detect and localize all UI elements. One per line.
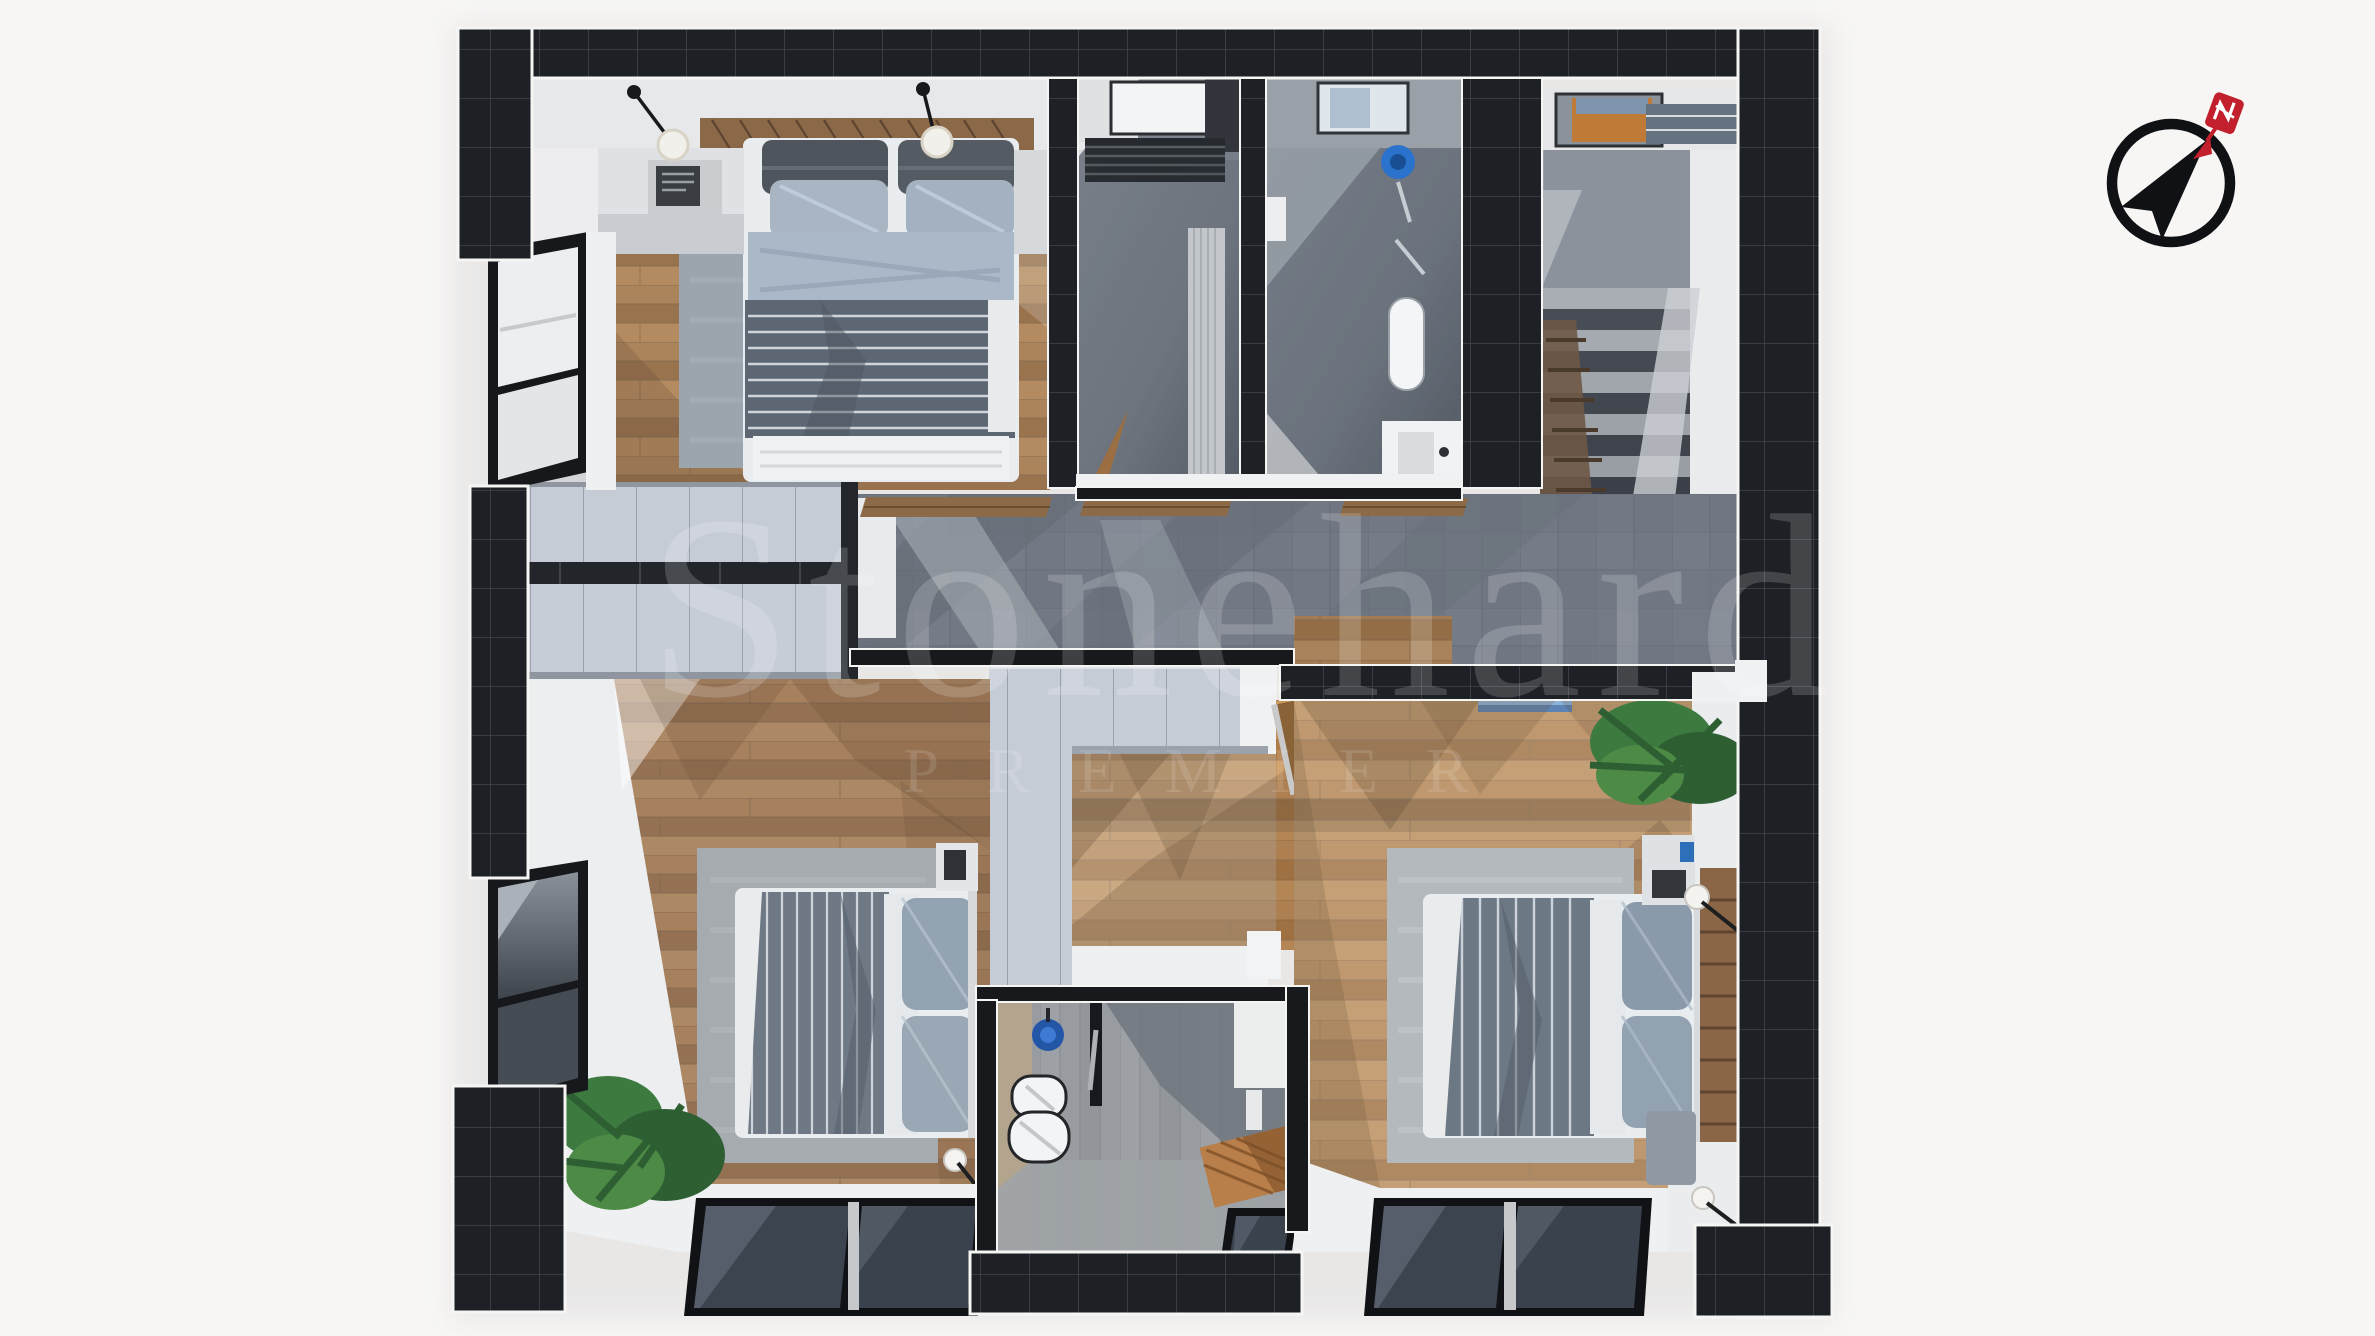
svg-text:Stonehard: Stonehard xyxy=(647,462,1844,752)
svg-text:PREMIER: PREMIER xyxy=(903,735,1516,806)
